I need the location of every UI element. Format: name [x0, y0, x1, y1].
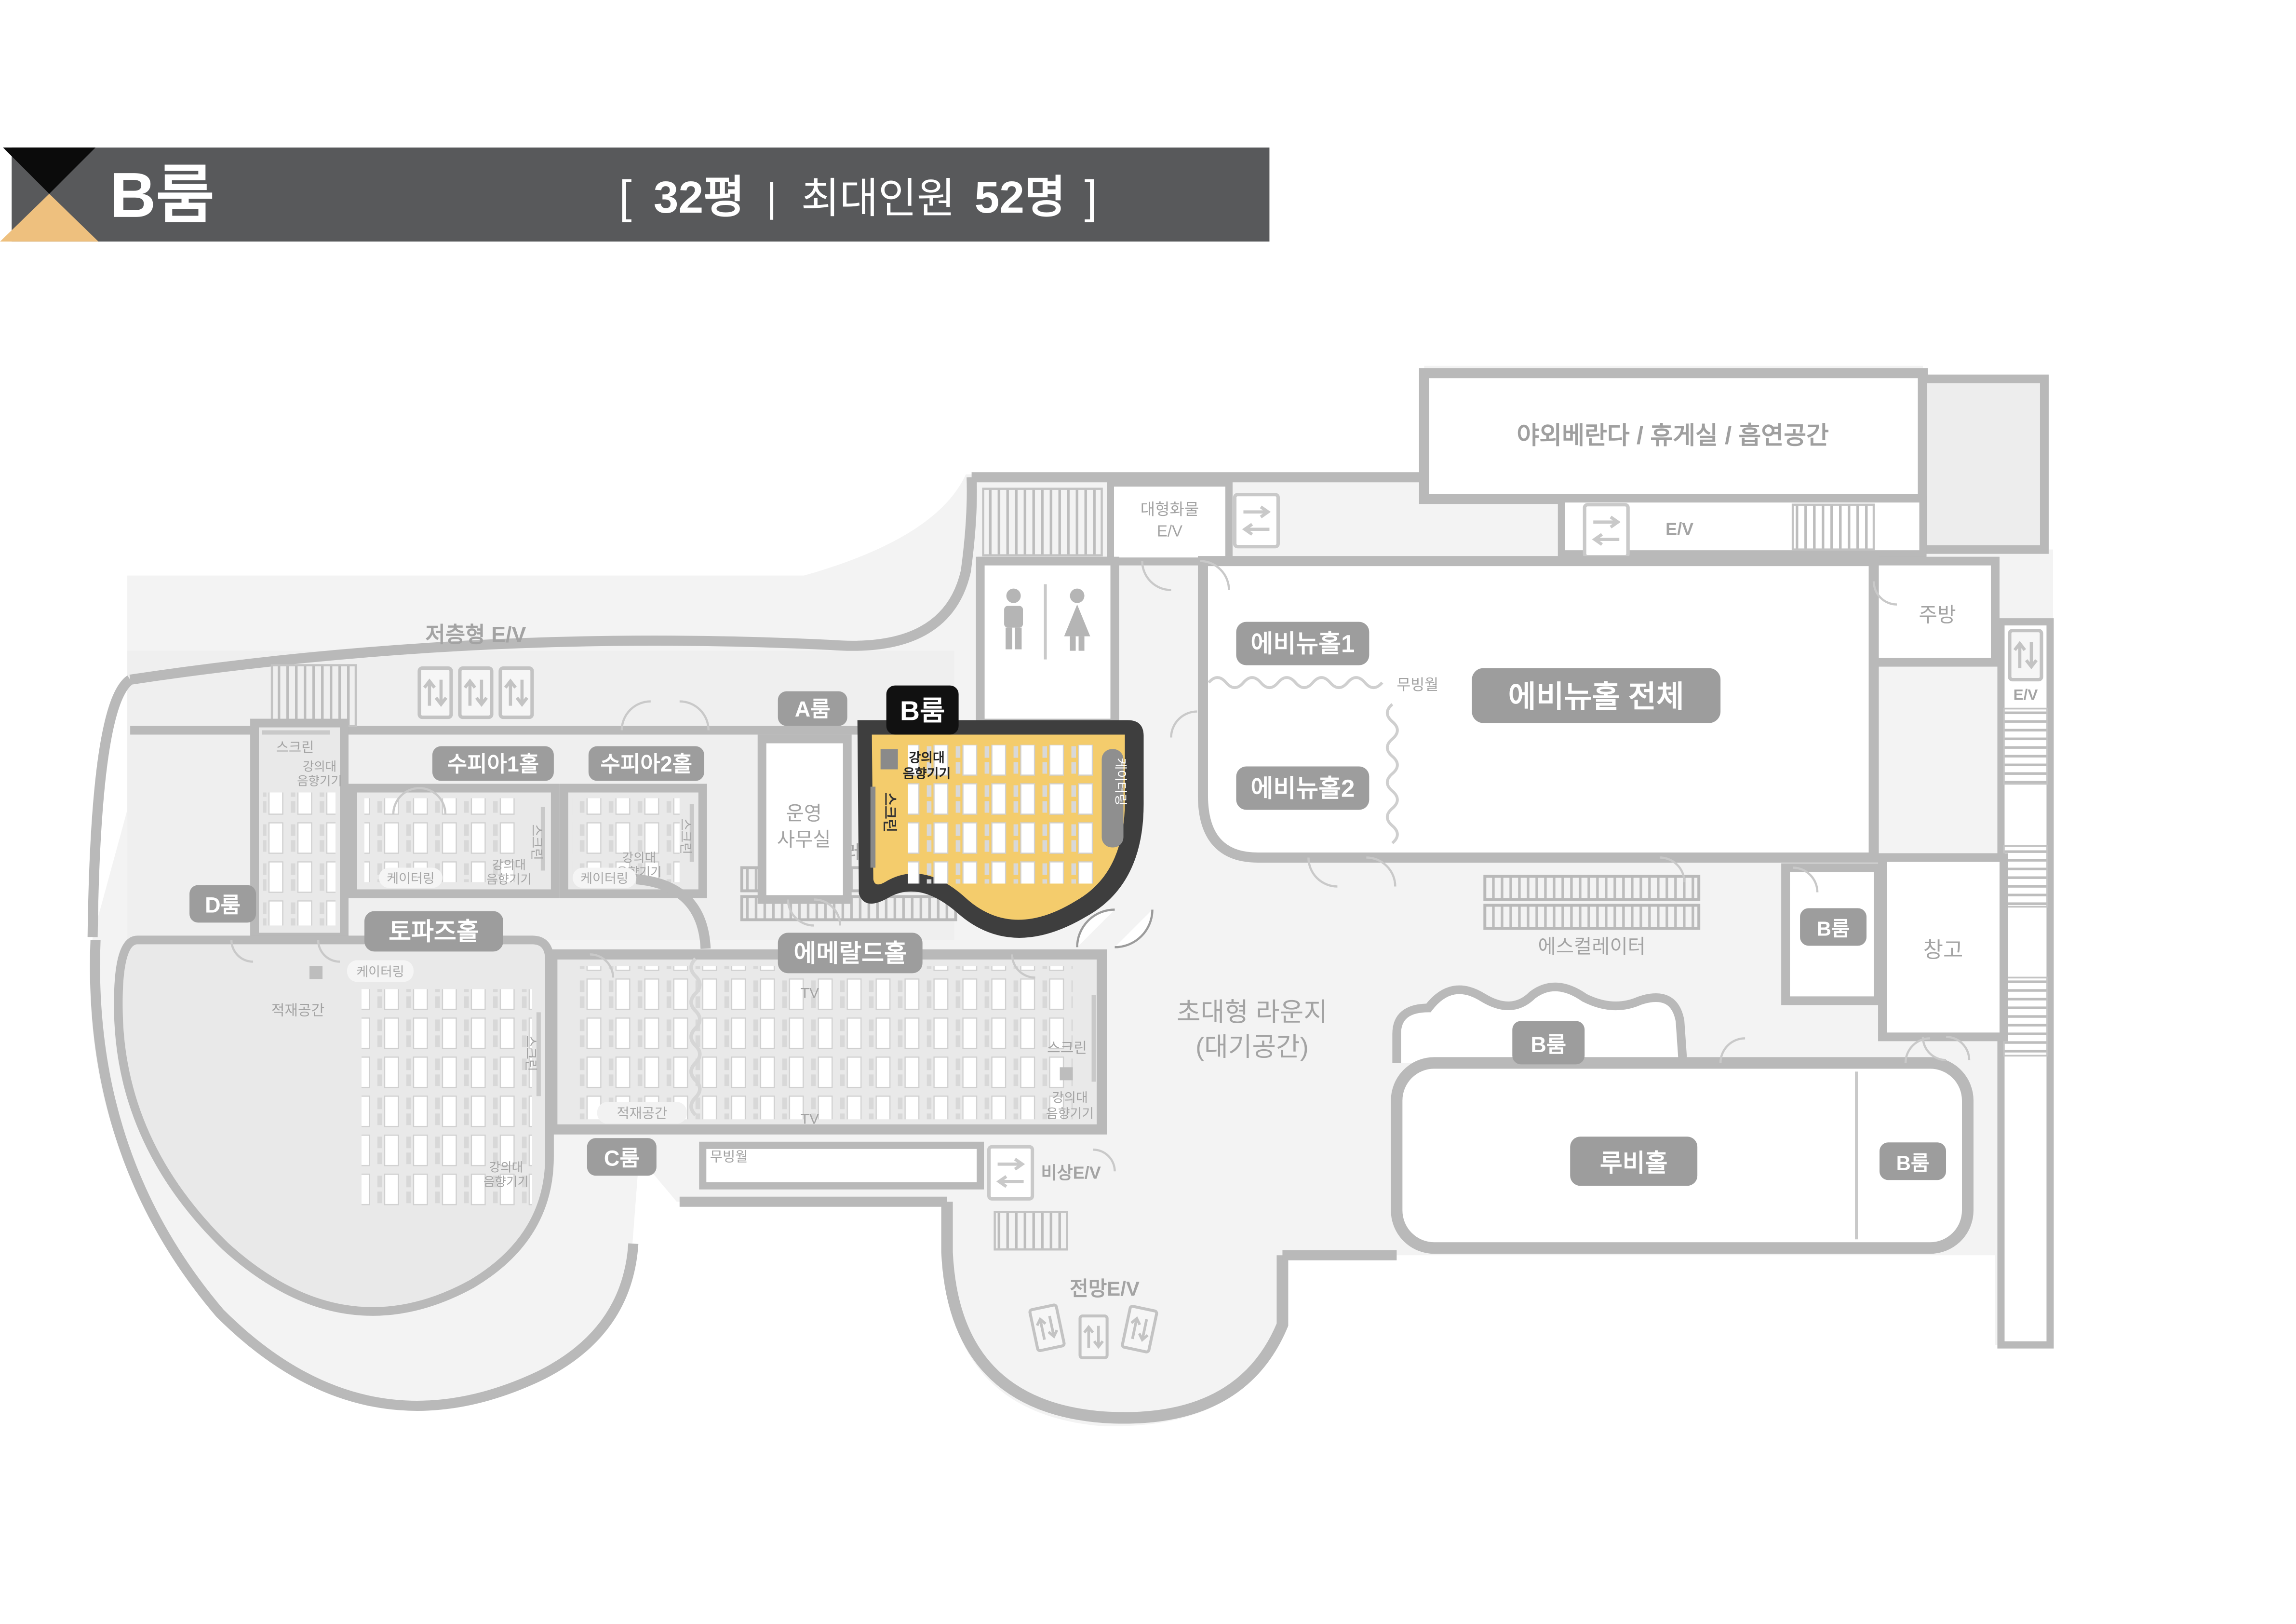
screen-label: 스크린 — [524, 1035, 538, 1071]
ruby-label: 루비홀 — [1600, 1149, 1668, 1177]
podium-marker — [1060, 1067, 1073, 1080]
toilets — [980, 561, 1115, 723]
podium-label: 강의대 — [909, 751, 944, 765]
cargo-ev-label: 대형화물 — [1141, 501, 1199, 518]
storage-room: 창고 — [1882, 857, 2004, 1037]
supia2-label: 수피아2홀 — [601, 752, 693, 776]
desk-rows — [908, 745, 1096, 884]
op-office-label: 사무실 — [777, 828, 831, 850]
escalator-icon — [1485, 876, 1699, 899]
stairs-icon — [995, 1212, 1067, 1249]
tv-label: TV — [801, 985, 819, 1001]
veranda-label: 야외베란다 / 휴게실 / 흡연공간 — [1517, 422, 1829, 449]
screen-label: 스크린 — [529, 824, 544, 860]
moving-wall-label: 무빙월 — [1396, 676, 1438, 693]
screen-bar — [1092, 995, 1096, 1082]
d-room-label: D룸 — [205, 893, 241, 917]
screen-bar — [871, 787, 875, 868]
moving-wall-corridor: 무빙월 — [703, 1145, 980, 1186]
info-bracket-open: [ — [619, 171, 632, 223]
info-separator: | — [766, 175, 777, 220]
lounge-label: (대기공간) — [1195, 1032, 1309, 1061]
moving-wall-label: 무빙월 — [710, 1149, 748, 1164]
podium-label: 음향기기 — [903, 767, 951, 781]
b-room-small: B룸 — [1786, 867, 1878, 1001]
catering-label: 케이터링 — [580, 871, 628, 886]
catering-label: 케이터링 — [387, 871, 434, 886]
stairs-icon — [272, 665, 356, 726]
floorplan-page: B룸 [ 32평 | 최대인원 52명 ] 저층형 E/V 대형화물 E/V 야… — [0, 0, 2296, 1624]
info-bracket-close: ] — [1085, 171, 1098, 223]
op-office-label: 운영 — [786, 802, 821, 824]
a-room-label: A룸 — [795, 697, 831, 721]
podium-label: 음향기기 — [297, 775, 342, 788]
podium-label: 강의대 — [622, 851, 656, 865]
avenue1-label: 에비뉴홀1 — [1250, 630, 1355, 658]
escalator-icon — [1485, 905, 1699, 928]
storage-label: 창고 — [1923, 937, 1963, 962]
b-room-right-label: B룸 — [1896, 1151, 1930, 1174]
elevator-icon — [2010, 631, 2041, 680]
operations-office: 운영 사무실 — [762, 739, 847, 900]
desk-rows — [576, 966, 1073, 1119]
podium-label: 음향기기 — [486, 873, 532, 886]
ev-label: E/V — [1665, 519, 1693, 539]
podium-label: 음향기기 — [483, 1175, 529, 1189]
avenue-all-label: 에비뉴홀 전체 — [1508, 680, 1684, 714]
stairs-icon — [2004, 977, 2047, 1056]
emerald-hall: TV TV 스크린 강의대 음향기기 적재공간 에메랄드홀 — [552, 933, 1102, 1129]
catering-label: 케이터링 — [1114, 758, 1128, 806]
upper-right-room — [1923, 379, 2044, 550]
stack-space-marker — [309, 966, 322, 979]
screen-label: 스크린 — [882, 793, 898, 833]
info-area: 32평 — [654, 172, 745, 222]
view-ev-label: 전망E/V — [1070, 1277, 1140, 1300]
header: B룸 [ 32평 | 최대인원 52명 ] — [0, 148, 1269, 242]
stairs-icon — [1793, 505, 1874, 550]
stairs-icon — [2004, 846, 2047, 907]
lounge-label: 초대형 라운지 — [1177, 998, 1328, 1027]
screen-label: 스크린 — [276, 740, 314, 756]
low-rise-ev-label: 저층형 E/V — [425, 623, 526, 647]
b-room-main-label: B룸 — [900, 696, 945, 727]
emerald-label: 에메랄드홀 — [793, 939, 906, 967]
supia1-label: 수피아1홀 — [447, 752, 539, 776]
elevator-icon — [500, 668, 532, 717]
info-capacity-value: 52명 — [975, 172, 1066, 222]
podium-label: 음향기기 — [1046, 1106, 1094, 1121]
elevator-icon — [1080, 1316, 1107, 1358]
elevator-icon — [419, 668, 451, 717]
desk-rows — [263, 793, 336, 926]
avenue2-label: 에비뉴홀2 — [1250, 775, 1355, 802]
tv-label: TV — [801, 1111, 819, 1127]
right-service-column: E/V — [2001, 622, 2050, 1345]
kitchen-label: 주방 — [1919, 604, 1956, 626]
catering-label: 케이터링 — [356, 964, 404, 979]
podium-label: 강의대 — [303, 760, 336, 774]
podium-label: 강의대 — [1052, 1090, 1088, 1105]
podium-label: 강의대 — [489, 1161, 523, 1174]
escalator-label: 에스컬레이터 — [1538, 935, 1646, 957]
screen-bar — [262, 731, 330, 735]
emergency-ev-label: 비상E/V — [1041, 1163, 1101, 1182]
c-room-label: C룸 — [604, 1146, 640, 1170]
ev-label: E/V — [2014, 686, 2038, 704]
elevator-icon — [460, 668, 492, 717]
podium-label: 강의대 — [492, 858, 526, 872]
b-room-annex-label: B룸 — [1531, 1032, 1566, 1057]
stack-space-label: 적재공간 — [617, 1106, 667, 1121]
floorplan-svg: B룸 [ 32평 | 최대인원 52명 ] 저층형 E/V 대형화물 E/V 야… — [0, 0, 2296, 1624]
screen-label: 스크린 — [1047, 1040, 1087, 1056]
avenue-halls: 무빙월 에비뉴홀1 에비뉴홀2 에비뉴홀 전체 — [1203, 561, 1874, 858]
screen-label: 스크린 — [678, 818, 693, 854]
shuttle-elevator-icon — [1235, 495, 1278, 547]
podium-marker — [881, 749, 898, 770]
shuttle-elevator-icon — [1584, 505, 1628, 557]
stack-space-label: 적재공간 — [271, 1002, 324, 1018]
page-title: B룸 — [110, 160, 215, 230]
stairs-icon — [983, 489, 1102, 555]
stairs-icon — [2004, 709, 2047, 784]
cargo-ev-label: E/V — [1157, 522, 1182, 540]
topaz-label: 토파즈홀 — [389, 918, 479, 945]
b-room-small-label: B룸 — [1817, 917, 1850, 940]
info-capacity-label: 최대인원 — [801, 175, 955, 222]
shuttle-elevator-icon — [989, 1147, 1033, 1199]
